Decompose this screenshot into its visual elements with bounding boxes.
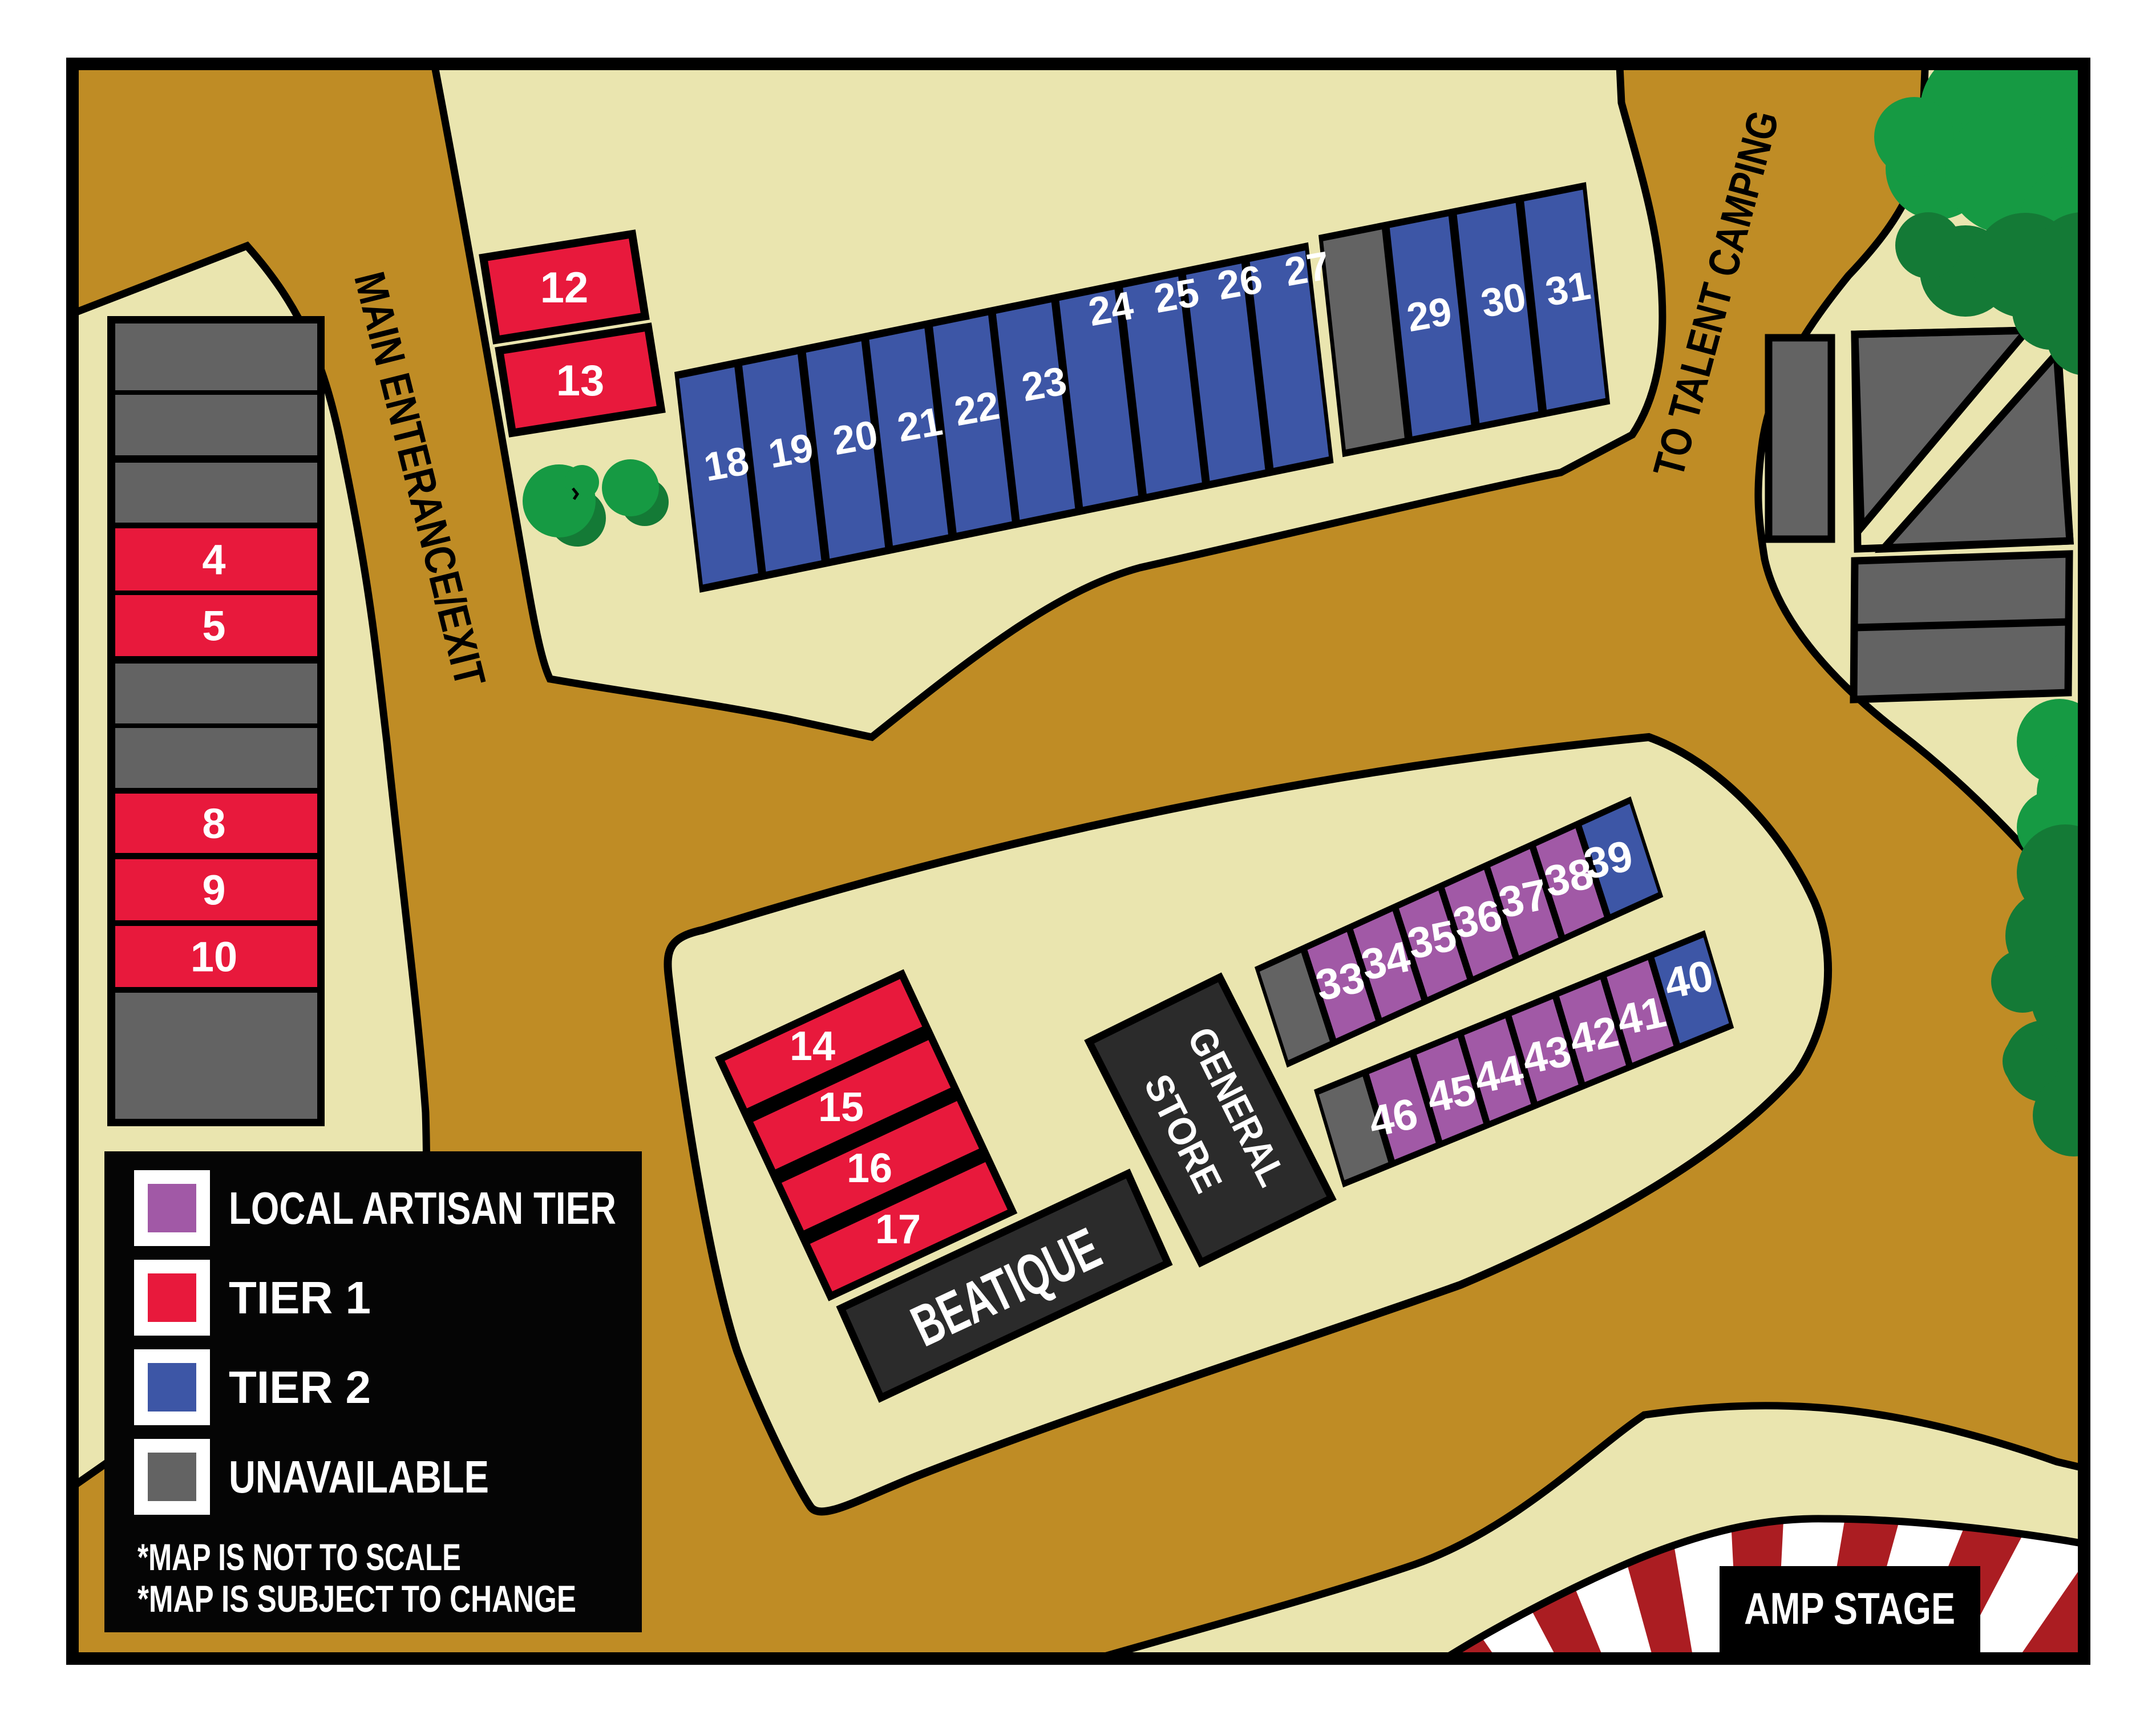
- svg-text:AMP STAGE: AMP STAGE: [1744, 1583, 1955, 1633]
- svg-text:15: 15: [818, 1085, 864, 1130]
- svg-text:45: 45: [1423, 1065, 1480, 1123]
- svg-text:12: 12: [540, 264, 589, 312]
- svg-text:44: 44: [1470, 1046, 1527, 1103]
- svg-text:34: 34: [1357, 932, 1414, 990]
- svg-text:26: 26: [1214, 257, 1265, 308]
- svg-text:24: 24: [1085, 283, 1136, 334]
- svg-text:18: 18: [701, 438, 752, 490]
- svg-text:19: 19: [765, 425, 816, 476]
- svg-text:36: 36: [1449, 891, 1506, 948]
- svg-text:23: 23: [1018, 358, 1070, 410]
- svg-text:31: 31: [1542, 263, 1593, 314]
- svg-text:29: 29: [1403, 289, 1455, 340]
- svg-text:46: 46: [1365, 1089, 1422, 1147]
- svg-text:37: 37: [1495, 870, 1552, 928]
- svg-text:39: 39: [1580, 831, 1637, 889]
- svg-text:14: 14: [790, 1024, 835, 1069]
- svg-text:43: 43: [1518, 1026, 1575, 1084]
- svg-text:TIER 2: TIER 2: [229, 1362, 371, 1413]
- svg-text:10: 10: [191, 933, 237, 981]
- svg-text:42: 42: [1566, 1007, 1623, 1065]
- svg-text:TIER 1: TIER 1: [229, 1272, 371, 1323]
- svg-text:25: 25: [1151, 270, 1202, 321]
- svg-text:35: 35: [1403, 911, 1461, 969]
- svg-text:4: 4: [202, 536, 225, 584]
- svg-text:13: 13: [556, 357, 605, 405]
- svg-text:40: 40: [1660, 951, 1717, 1009]
- svg-text:9: 9: [202, 867, 225, 914]
- svg-text:8: 8: [202, 800, 225, 847]
- svg-text:5: 5: [202, 602, 225, 650]
- svg-text:*MAP IS NOT TO SCALE: *MAP IS NOT TO SCALE: [137, 1536, 461, 1578]
- svg-text:20: 20: [830, 412, 881, 463]
- svg-text:LOCAL ARTISAN TIER: LOCAL ARTISAN TIER: [229, 1183, 616, 1233]
- svg-text:30: 30: [1478, 274, 1529, 326]
- svg-text:16: 16: [847, 1146, 892, 1191]
- svg-text:27: 27: [1281, 243, 1333, 294]
- svg-text:21: 21: [894, 399, 945, 450]
- svg-text:UNAVAILABLE: UNAVAILABLE: [229, 1451, 489, 1502]
- svg-text:41: 41: [1613, 988, 1670, 1045]
- svg-text:*MAP IS SUBJECT TO CHANGE: *MAP IS SUBJECT TO CHANGE: [137, 1578, 576, 1620]
- svg-text:33: 33: [1312, 953, 1369, 1010]
- svg-text:22: 22: [951, 383, 1002, 434]
- svg-text:17: 17: [875, 1207, 921, 1252]
